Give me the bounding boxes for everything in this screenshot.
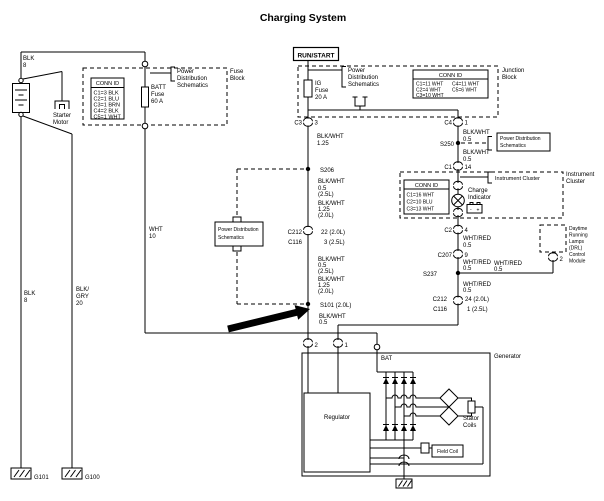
battery-circuit: BLK 8 Starter Motor BLK 8 BLK/ GRY 20 G1… bbox=[11, 52, 145, 481]
run-start-label: RUN/START bbox=[297, 53, 334, 60]
regulator-label: Regulator bbox=[324, 415, 350, 421]
instrument-cluster-label: Instrument bbox=[566, 172, 595, 178]
cluster-conn-id-table: CONN ID C1=16 WHT C2=10 BLU C3=13 WHT bbox=[404, 180, 449, 214]
ground-g101-label: G101 bbox=[34, 475, 49, 481]
connector-c3-pin: 3 bbox=[315, 121, 319, 127]
generator-pin2: 2 bbox=[315, 343, 319, 349]
connector-c207-label: C207 bbox=[438, 253, 453, 259]
drl-label: (DRL) bbox=[569, 246, 583, 252]
brush-icon bbox=[399, 440, 409, 479]
batt-fuse-icon bbox=[142, 87, 149, 107]
field-coil-label: Field Coil bbox=[437, 449, 458, 455]
pds-reference: Schematics bbox=[500, 143, 526, 149]
wire-gauge: 0.5 bbox=[463, 266, 472, 272]
hidden-wire-path bbox=[237, 169, 304, 304]
splice-s206 bbox=[306, 167, 310, 171]
generator-pin1: 1 bbox=[345, 343, 349, 349]
drl-label: Control bbox=[569, 252, 585, 258]
ig-fuse-label: IG bbox=[315, 81, 322, 87]
bus-connector-icon bbox=[353, 97, 368, 110]
reference-bracket bbox=[150, 67, 175, 81]
starter-motor-symbol bbox=[55, 101, 69, 109]
ground-g101-icon bbox=[11, 468, 31, 479]
wire-label: BLK/WHT bbox=[317, 134, 344, 140]
splice-s237-label: S237 bbox=[423, 272, 438, 278]
splice-s101 bbox=[306, 302, 310, 306]
wire-gauge: 20 bbox=[76, 301, 83, 307]
connector-c212-pin: 24 (2.0L) bbox=[465, 297, 489, 303]
pds-reference: Distribution bbox=[177, 76, 207, 82]
connector-c4-pin: 1 bbox=[465, 121, 469, 127]
splice-s206-label: S206 bbox=[320, 168, 335, 174]
generator-ground-icon bbox=[396, 479, 412, 488]
splice-s237 bbox=[456, 271, 460, 275]
connector-c212-icon bbox=[304, 226, 313, 235]
stator-coils-label: Coils bbox=[463, 423, 476, 429]
generator: Generator 2 1 BAT Regulator bbox=[302, 339, 521, 488]
reference-bracket bbox=[308, 67, 346, 88]
junction-conn-id-table: CONN ID C1=11 WHT C2=4 WHT C3=10 WHT C4=… bbox=[413, 70, 488, 99]
conn-id-row: C5=6 WHT bbox=[452, 88, 477, 94]
conn-id-row: C2=10 BLU bbox=[407, 200, 433, 206]
pds-reference: Schematics bbox=[177, 83, 208, 89]
wire-engine: (2.5L) bbox=[318, 192, 334, 198]
field-coil-icon bbox=[421, 443, 429, 453]
fuse-block-top-terminal bbox=[142, 61, 148, 67]
pds-reference: Power Distribution bbox=[218, 227, 259, 233]
charge-indicator-label: Indicator bbox=[468, 195, 491, 201]
wire-gauge: 0.5 bbox=[463, 288, 472, 294]
connector-c2-pin: 4 bbox=[465, 228, 469, 234]
connector-c212-label: C212 bbox=[433, 297, 448, 303]
wire-label: BLK/ bbox=[76, 287, 89, 293]
wire-label: WHT bbox=[149, 227, 163, 233]
wire-engine: (2.0L) bbox=[318, 213, 334, 219]
pds-reference: Power bbox=[348, 68, 365, 74]
fuse-block-conn-id-table: CONN ID C1=3 BLK C2=1 BLU C3=1 BRN C4=2 … bbox=[91, 78, 124, 121]
charge-indicator-label: Charge bbox=[468, 188, 488, 194]
phase-wire bbox=[404, 413, 440, 416]
junction-block-label: Junction bbox=[502, 68, 524, 74]
wire-gauge: 10 bbox=[149, 234, 156, 240]
drl-module-outline bbox=[540, 225, 566, 252]
splice-s250-label: S250 bbox=[440, 142, 455, 148]
instrument-cluster-label: Cluster bbox=[566, 179, 585, 185]
starter-motor-label: Starter bbox=[53, 113, 71, 119]
wire-gauge: 0.5 bbox=[463, 157, 472, 163]
page-title: Charging System bbox=[260, 12, 346, 24]
conn-id-row: C3=10 WHT bbox=[416, 93, 444, 99]
ig-fuse-rating: 20 A bbox=[315, 95, 327, 101]
connector-c4-icon bbox=[454, 118, 463, 127]
wire-gauge: 8 bbox=[23, 63, 27, 69]
splice-s101-label: S101 (2.0L) bbox=[320, 303, 351, 309]
fuse-block-label: Block bbox=[230, 76, 246, 82]
pds-reference: Power Distribution bbox=[500, 136, 541, 142]
wire-gauge: 1.25 bbox=[317, 141, 329, 147]
battery-symbol bbox=[13, 84, 30, 113]
junction-block-label: Block bbox=[502, 75, 518, 81]
connector-c212-label: C212 bbox=[288, 230, 303, 236]
pds-reference: Schematics bbox=[348, 82, 379, 88]
wire-gauge: 8 bbox=[24, 298, 28, 304]
wire-label: BLK/WHT bbox=[463, 150, 490, 156]
regulator-box bbox=[304, 393, 370, 472]
ig-fuse-icon bbox=[304, 80, 312, 97]
drl-module: Daytime Running Lamps (DRL) Control Modu… bbox=[540, 225, 588, 265]
fuse-block-bottom-terminal bbox=[142, 123, 148, 129]
connector-c116-label: C116 bbox=[288, 240, 303, 246]
highlight-arrow bbox=[227, 305, 310, 332]
conn-id-row: C3=13 WHT bbox=[407, 207, 435, 213]
charging-system-diagram: Charging System BLK 8 Starter Motor BLK … bbox=[0, 0, 604, 496]
wire-label: BLK/WHT bbox=[463, 130, 490, 136]
ground-g100-label: G100 bbox=[85, 475, 100, 481]
conn-id-row: C5=1 WHT bbox=[94, 115, 122, 121]
connector-c3-icon bbox=[304, 118, 313, 127]
battery-positive-terminal bbox=[19, 78, 23, 82]
drl-label: Module bbox=[569, 259, 586, 265]
charge-indicator-lamp-icon bbox=[452, 194, 465, 207]
connector-c116-label: C116 bbox=[433, 307, 448, 313]
wire-gauge: 0.5 bbox=[463, 243, 472, 249]
conn-id-header: CONN ID bbox=[415, 183, 438, 189]
phase-wire bbox=[395, 404, 449, 407]
ground-g100-icon bbox=[62, 468, 82, 479]
wire-label: BLK/WHT bbox=[318, 179, 345, 185]
fuse-block-label: Fuse bbox=[230, 69, 244, 75]
wire-label: WHT/RED bbox=[463, 236, 492, 242]
drl-connector-pin: 2 bbox=[560, 257, 564, 263]
bat-terminal bbox=[374, 344, 380, 350]
drl-label: Daytime bbox=[569, 226, 588, 232]
conn-id-row: C1=16 WHT bbox=[407, 193, 435, 199]
wire-label: BLK bbox=[23, 56, 34, 62]
connector-c2-label: C2 bbox=[444, 228, 452, 234]
connector-c3-label: C3 bbox=[294, 121, 302, 127]
instrument-cluster: Instrument Cluster Instrument Cluster CO… bbox=[400, 172, 595, 218]
battery-icon: - + bbox=[467, 203, 482, 214]
conn-id-header: CONN ID bbox=[439, 73, 462, 79]
wire-gauge: 0.5 bbox=[463, 137, 472, 143]
connector-c212-pin: 22 (2.0L) bbox=[321, 230, 345, 236]
reference-bracket bbox=[488, 137, 492, 151]
pds-reference: Schematics bbox=[218, 235, 244, 241]
cluster-reference: Instrument Cluster bbox=[495, 176, 540, 182]
drl-label: Lamps bbox=[569, 239, 585, 245]
wire-engine: (2.5L) bbox=[318, 269, 334, 275]
pds-reference-box bbox=[215, 222, 263, 246]
connector-c4-label: C4 bbox=[444, 121, 452, 127]
connector-icon bbox=[231, 246, 244, 251]
connector-icon bbox=[231, 217, 244, 222]
wire-label: BLK bbox=[24, 291, 35, 297]
batt-fuse-label: BATT bbox=[151, 85, 166, 91]
pds-reference: Distribution bbox=[348, 75, 378, 81]
junction-block: RUN/START Junction Block IG Fuse 20 A Po… bbox=[294, 48, 525, 127]
wiring-diagram-canvas: Charging System BLK 8 Starter Motor BLK … bbox=[0, 0, 604, 496]
wire-engine: (2.0L) bbox=[318, 289, 334, 295]
connector-c116-pin: 3 (2.5L) bbox=[324, 240, 345, 246]
fuse-block: Fuse Block BATT Fuse 60 A Power Distribu… bbox=[83, 52, 377, 344]
wire-gauge: 0.5 bbox=[319, 320, 328, 326]
connector-c1-pin: 14 bbox=[465, 165, 472, 171]
batt-fuse-rating: 60 A bbox=[151, 99, 163, 105]
generator-label: Generator bbox=[494, 354, 521, 360]
wire-gauge: 0.5 bbox=[494, 267, 503, 273]
connector-c116-pin: 1 (2.5L) bbox=[467, 307, 488, 313]
battery-icon-plus: + bbox=[477, 208, 480, 214]
connector-c1-label: C1 bbox=[444, 165, 452, 171]
drl-label: Running bbox=[569, 233, 588, 239]
splice-s250 bbox=[456, 141, 460, 145]
battery-icon-minus: - bbox=[470, 207, 472, 213]
bat-terminal-label: BAT bbox=[381, 356, 393, 362]
stator-coils-label: Stator bbox=[463, 416, 479, 422]
ig-fuse-label: Fuse bbox=[315, 88, 329, 94]
reference-bracket bbox=[460, 172, 492, 183]
wire-label: GRY bbox=[76, 294, 89, 300]
batt-fuse-label: Fuse bbox=[151, 92, 165, 98]
conn-id-header: CONN ID bbox=[96, 81, 119, 87]
starter-motor-label: Motor bbox=[53, 120, 68, 126]
pds-reference: Power bbox=[177, 69, 194, 75]
connector-c207-pin: 9 bbox=[465, 253, 469, 259]
